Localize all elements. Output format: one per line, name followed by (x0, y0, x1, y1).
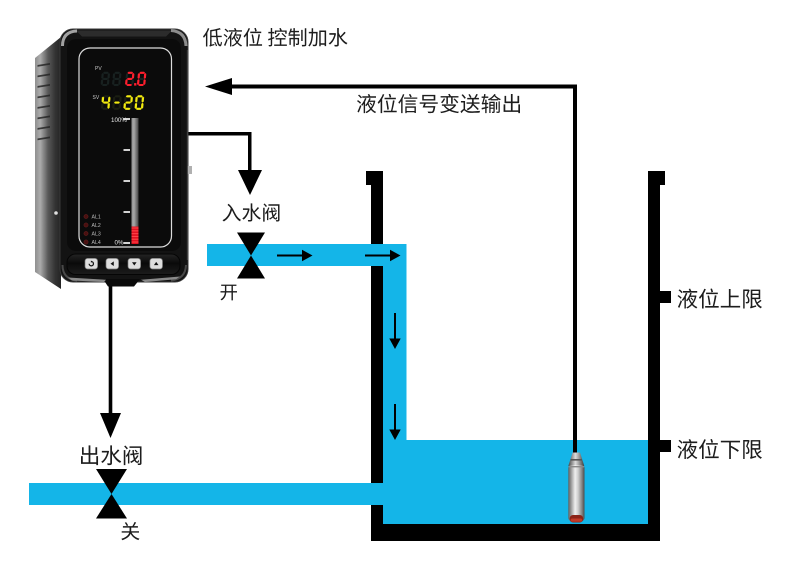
svg-text:AL3: AL3 (92, 231, 101, 237)
svg-text:AL2: AL2 (92, 223, 101, 229)
svg-text:PV: PV (95, 66, 102, 72)
svg-text:100%: 100% (111, 117, 127, 124)
svg-text:SV: SV (93, 95, 100, 101)
svg-text:0%: 0% (115, 239, 124, 246)
svg-text:AL1: AL1 (92, 214, 101, 220)
svg-text:AL4: AL4 (92, 240, 101, 246)
